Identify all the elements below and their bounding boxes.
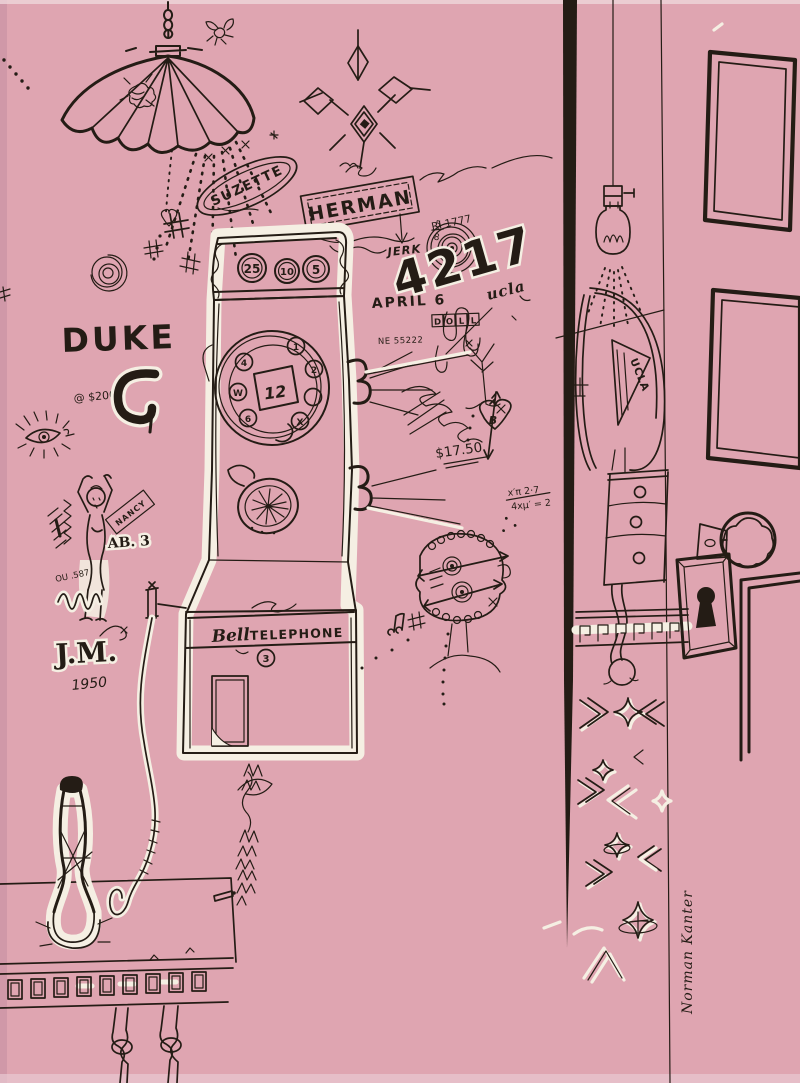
coin-slot-5: 5: [312, 263, 320, 277]
table-group: [0, 776, 236, 1083]
coin-slot-10: 10: [280, 267, 294, 278]
year-text: 1950: [71, 674, 108, 694]
telephone-text: TELEPHONE: [250, 625, 344, 643]
jm-signature: J.M. 1950: [52, 626, 127, 694]
face-doodle: [361, 531, 511, 706]
dresser: [604, 470, 668, 685]
phone-rotary-dial: 1 2 4 W 6 X 12: [215, 331, 329, 445]
door-panels: [705, 52, 800, 760]
signature-text: Norman Kanter: [680, 890, 696, 1015]
dial-hole-w: W: [233, 389, 243, 399]
dial-center-card: 12: [263, 382, 288, 404]
table-legs: [112, 1006, 181, 1083]
artwork-canvas: SUZETTE HERMAN RI 1777 JERK 5 8 4217 APR…: [0, 0, 800, 1083]
doll-letter: L: [459, 317, 465, 327]
table-specks: [150, 948, 194, 960]
woman-doodle: NANCY AB. 3 OU .587: [48, 475, 154, 621]
phone-cord: [110, 582, 186, 915]
tree-doodle: [466, 340, 505, 442]
hanging-lamp: [62, 2, 272, 266]
greek-key-baseboard: [576, 609, 688, 646]
diamond-star-ornament: [300, 30, 430, 168]
formula-bottom-text: 4xμ′ = 2: [511, 498, 552, 513]
artist-signature: Norman Kanter: [680, 890, 696, 1015]
phone-mouthpiece: [228, 465, 303, 538]
dial-hole-6: 6: [245, 415, 251, 425]
dial-hole-4: 4: [241, 359, 247, 369]
bell-script-text: Bell: [210, 625, 251, 647]
hatch-patches: [236, 764, 272, 905]
coin-slot-25: 25: [244, 262, 261, 276]
ne-number-text: NE 55222: [378, 335, 424, 347]
door-number-text: 3: [263, 654, 270, 665]
price-200-text: @ $200: [73, 388, 116, 405]
doorknob: [697, 513, 775, 567]
hanging-bulb: [587, 0, 641, 331]
telephone-receiver: [36, 776, 112, 948]
saturn-star-1: [604, 833, 631, 859]
doll-letter: D: [434, 318, 441, 328]
price-1750: $17.50: [434, 440, 486, 468]
fly-icon: [206, 19, 233, 45]
nancy-banner: NANCY: [106, 490, 155, 534]
dial-hole-1: 1: [293, 343, 299, 353]
duke-text: DUKE: [61, 317, 177, 360]
doll-letter: O: [446, 317, 454, 327]
receiver-hook: [118, 373, 155, 432]
dial-hole-2: 2: [311, 366, 317, 376]
april-text: APRIL 6: [371, 292, 446, 312]
phone-side-hooks: [348, 352, 470, 528]
hash-doodles: [0, 213, 200, 301]
ab3-text: AB. 3: [106, 533, 150, 552]
music-marks: [388, 612, 425, 635]
bug-on-lamp: [120, 74, 156, 108]
saturn-star-2: [619, 902, 658, 940]
table-apron-rects: [8, 972, 206, 999]
jm-text: J.M.: [52, 635, 118, 671]
eye-doodle: [16, 411, 74, 458]
heart-arrow-doodle: B: [480, 392, 511, 459]
mirror-and-dresser: UCLA: [556, 288, 688, 685]
doll-letter: L: [471, 316, 477, 326]
spiral-doodle: [91, 255, 127, 291]
ucla-pennant: UCLA: [612, 340, 651, 425]
math-formula: x′π 2·7 4xμ′ = 2: [498, 484, 554, 533]
dial-hole-x: X: [297, 418, 304, 428]
phone-lower-box: Bell TELEPHONE 3: [183, 602, 357, 753]
